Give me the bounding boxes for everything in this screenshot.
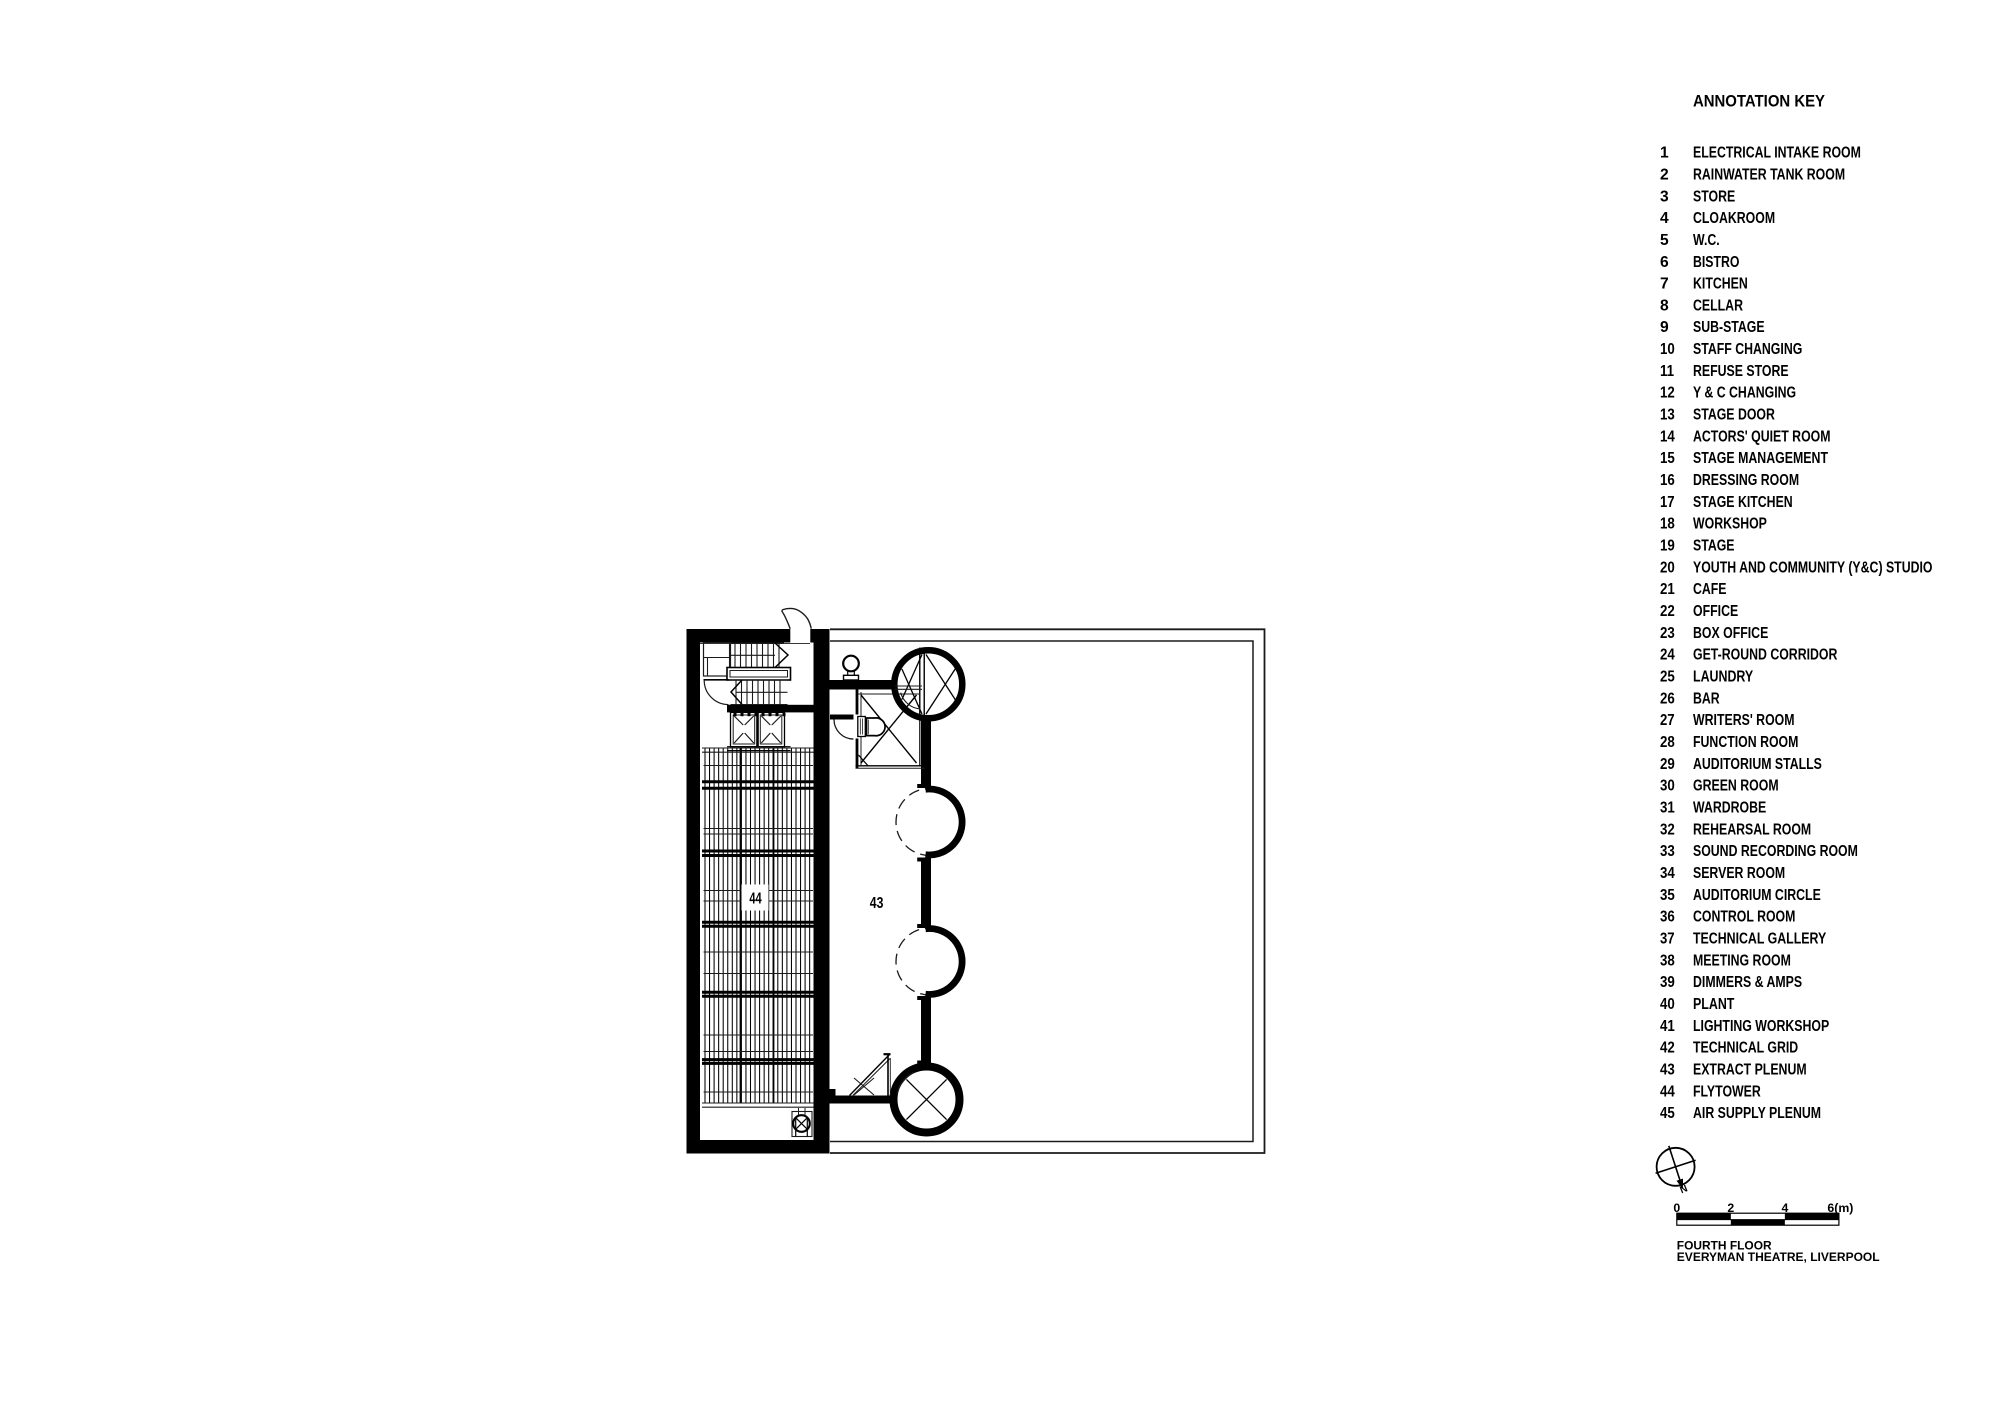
svg-text:40: 40 [1660, 996, 1675, 1013]
svg-text:25: 25 [1660, 669, 1675, 686]
svg-text:GREEN ROOM: GREEN ROOM [1693, 778, 1779, 795]
svg-text:4: 4 [1660, 210, 1669, 227]
svg-text:35: 35 [1660, 887, 1675, 904]
svg-text:FLYTOWER: FLYTOWER [1693, 1083, 1761, 1100]
svg-text:5: 5 [1660, 232, 1669, 249]
svg-text:OFFICE: OFFICE [1693, 603, 1738, 620]
svg-text:AUDITORIUM CIRCLE: AUDITORIUM CIRCLE [1693, 887, 1821, 904]
svg-text:38: 38 [1660, 952, 1675, 969]
svg-text:TECHNICAL GALLERY: TECHNICAL GALLERY [1693, 930, 1827, 947]
svg-text:16: 16 [1660, 472, 1675, 489]
svg-text:STAGE DOOR: STAGE DOOR [1693, 407, 1775, 424]
svg-text:10: 10 [1660, 341, 1675, 358]
svg-text:0: 0 [1673, 1201, 1680, 1215]
svg-text:22: 22 [1660, 603, 1675, 620]
svg-text:15: 15 [1660, 450, 1675, 467]
svg-text:36: 36 [1660, 909, 1675, 926]
svg-text:30: 30 [1660, 778, 1675, 795]
svg-text:11: 11 [1660, 363, 1674, 380]
svg-text:2: 2 [1727, 1201, 1734, 1215]
svg-text:ELECTRICAL INTAKE ROOM: ELECTRICAL INTAKE ROOM [1693, 145, 1861, 162]
svg-text:13: 13 [1660, 407, 1675, 424]
svg-text:6: 6 [1660, 254, 1669, 271]
svg-text:EVERYMAN THEATRE, LIVERPOOL: EVERYMAN THEATRE, LIVERPOOL [1677, 1250, 1880, 1264]
svg-text:43: 43 [1660, 1061, 1675, 1078]
svg-text:DRESSING ROOM: DRESSING ROOM [1693, 472, 1799, 489]
svg-text:3: 3 [1660, 188, 1669, 205]
svg-text:1: 1 [1660, 145, 1669, 162]
svg-text:STAGE MANAGEMENT: STAGE MANAGEMENT [1693, 450, 1828, 467]
svg-text:ANNOTATION KEY: ANNOTATION KEY [1693, 92, 1825, 110]
svg-text:8: 8 [1660, 297, 1669, 314]
svg-text:12: 12 [1660, 385, 1675, 402]
svg-text:ACTORS' QUIET ROOM: ACTORS' QUIET ROOM [1693, 428, 1831, 445]
svg-text:GET-ROUND CORRIDOR: GET-ROUND CORRIDOR [1693, 647, 1837, 664]
svg-text:EXTRACT PLENUM: EXTRACT PLENUM [1693, 1061, 1807, 1078]
svg-text:SUB-STAGE: SUB-STAGE [1693, 319, 1765, 336]
svg-text:RAINWATER TANK ROOM: RAINWATER TANK ROOM [1693, 166, 1845, 183]
svg-text:FUNCTION ROOM: FUNCTION ROOM [1693, 734, 1798, 751]
svg-text:9: 9 [1660, 319, 1669, 336]
svg-text:7: 7 [1660, 276, 1669, 293]
svg-text:DIMMERS & AMPS: DIMMERS & AMPS [1693, 974, 1802, 991]
svg-text:PLANT: PLANT [1693, 996, 1735, 1013]
svg-text:CONTROL ROOM: CONTROL ROOM [1693, 909, 1795, 926]
svg-text:REHEARSAL ROOM: REHEARSAL ROOM [1693, 821, 1811, 838]
svg-text:MEETING ROOM: MEETING ROOM [1693, 952, 1791, 969]
svg-text:32: 32 [1660, 821, 1675, 838]
svg-text:TECHNICAL GRID: TECHNICAL GRID [1693, 1040, 1798, 1057]
svg-text:23: 23 [1660, 625, 1675, 642]
svg-text:STAGE KITCHEN: STAGE KITCHEN [1693, 494, 1793, 511]
svg-text:CAFE: CAFE [1693, 581, 1727, 598]
svg-text:4: 4 [1781, 1201, 1788, 1215]
svg-text:27: 27 [1660, 712, 1675, 729]
svg-text:Y & C CHANGING: Y & C CHANGING [1693, 385, 1796, 402]
svg-text:44: 44 [1660, 1083, 1675, 1100]
svg-text:29: 29 [1660, 756, 1675, 773]
svg-text:43: 43 [870, 895, 884, 912]
svg-text:WRITERS' ROOM: WRITERS' ROOM [1693, 712, 1795, 729]
svg-text:W.C.: W.C. [1693, 232, 1720, 249]
svg-text:STAGE: STAGE [1693, 538, 1735, 555]
svg-text:LIGHTING WORKSHOP: LIGHTING WORKSHOP [1693, 1018, 1829, 1035]
svg-text:2: 2 [1660, 166, 1669, 183]
svg-text:34: 34 [1660, 865, 1675, 882]
svg-text:31: 31 [1660, 800, 1675, 817]
svg-text:18: 18 [1660, 516, 1675, 533]
svg-text:SERVER ROOM: SERVER ROOM [1693, 865, 1785, 882]
svg-text:CLOAKROOM: CLOAKROOM [1693, 210, 1775, 227]
svg-text:WARDROBE: WARDROBE [1693, 800, 1766, 817]
svg-text:37: 37 [1660, 930, 1675, 947]
svg-text:REFUSE STORE: REFUSE STORE [1693, 363, 1789, 380]
svg-text:19: 19 [1660, 538, 1675, 555]
svg-text:42: 42 [1660, 1040, 1675, 1057]
svg-text:44: 44 [749, 890, 761, 907]
svg-text:CELLAR: CELLAR [1693, 297, 1743, 314]
svg-text:BISTRO: BISTRO [1693, 254, 1740, 271]
svg-text:33: 33 [1660, 843, 1675, 860]
svg-text:20: 20 [1660, 559, 1675, 576]
svg-text:6(m): 6(m) [1827, 1201, 1853, 1215]
svg-text:39: 39 [1660, 974, 1675, 991]
svg-text:28: 28 [1660, 734, 1675, 751]
svg-text:BAR: BAR [1693, 690, 1720, 707]
svg-text:KITCHEN: KITCHEN [1693, 276, 1748, 293]
svg-text:N: N [1679, 1183, 1690, 1196]
svg-text:41: 41 [1660, 1018, 1675, 1035]
svg-text:STAFF CHANGING: STAFF CHANGING [1693, 341, 1802, 358]
svg-text:BOX OFFICE: BOX OFFICE [1693, 625, 1768, 642]
svg-text:14: 14 [1660, 428, 1675, 445]
svg-text:WORKSHOP: WORKSHOP [1693, 516, 1767, 533]
svg-text:21: 21 [1660, 581, 1675, 598]
svg-text:LAUNDRY: LAUNDRY [1693, 669, 1754, 686]
svg-text:17: 17 [1660, 494, 1675, 511]
svg-text:24: 24 [1660, 647, 1675, 664]
svg-text:SOUND RECORDING ROOM: SOUND RECORDING ROOM [1693, 843, 1858, 860]
svg-text:AUDITORIUM STALLS: AUDITORIUM STALLS [1693, 756, 1822, 773]
svg-text:26: 26 [1660, 690, 1675, 707]
svg-text:45: 45 [1660, 1105, 1675, 1122]
svg-text:STORE: STORE [1693, 188, 1735, 205]
svg-text:YOUTH AND COMMUNITY (Y&C) STUD: YOUTH AND COMMUNITY (Y&C) STUDIO [1693, 559, 1933, 576]
svg-text:AIR SUPPLY PLENUM: AIR SUPPLY PLENUM [1693, 1105, 1821, 1122]
